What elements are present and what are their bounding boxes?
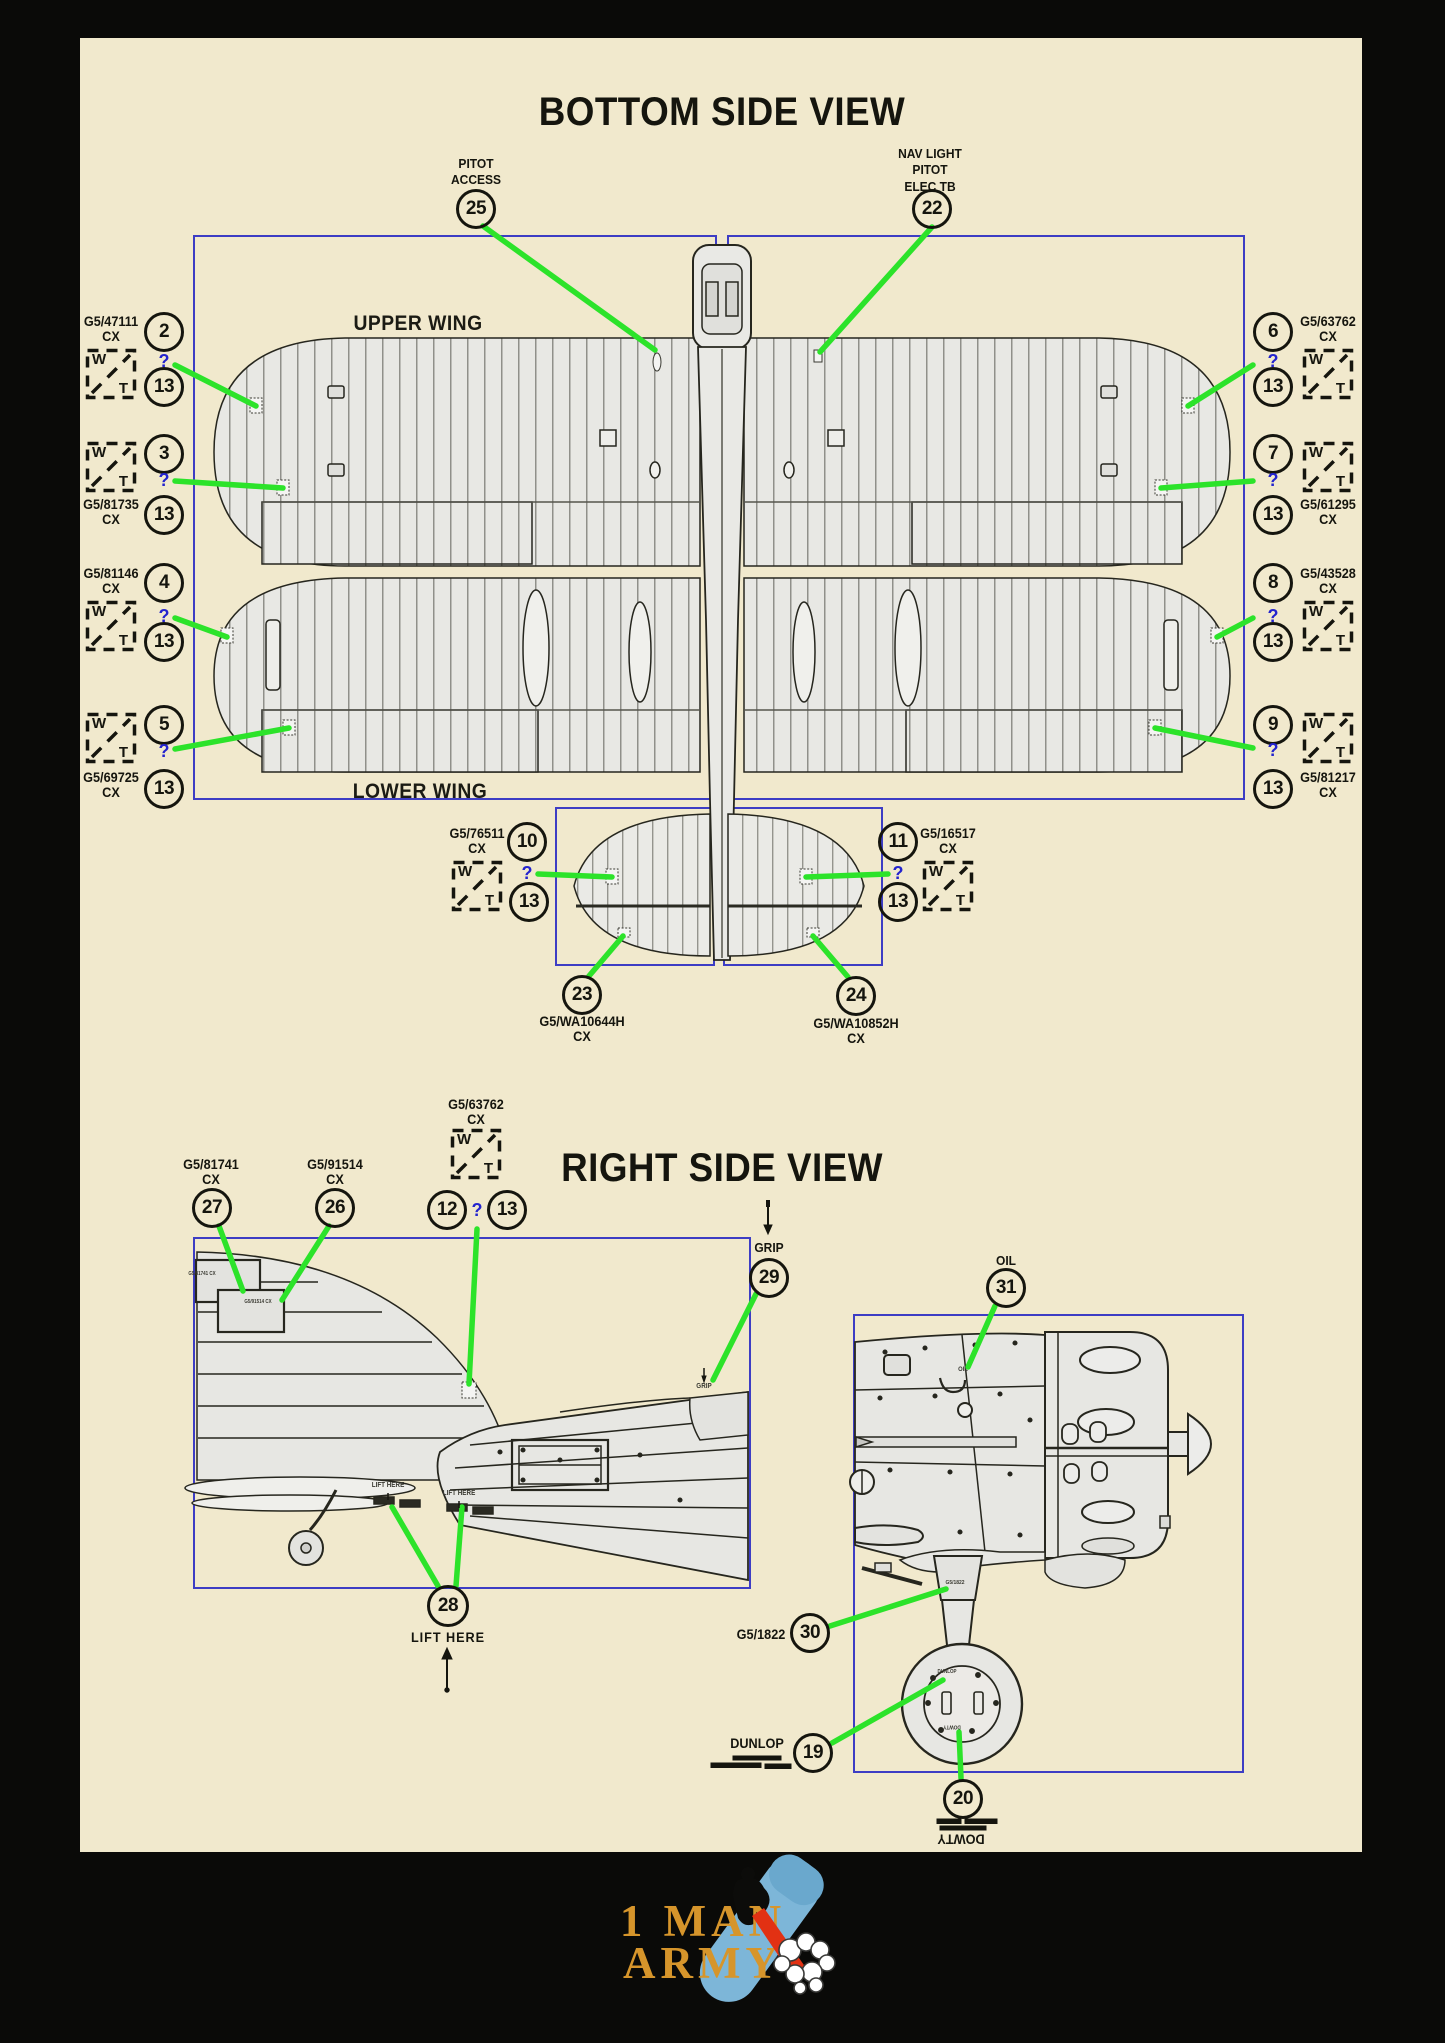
upper-wing-label: UPPER WING — [326, 312, 510, 336]
wet-transfer-icon-a: W T — [85, 348, 137, 400]
code-elv-right-number: G5/16517 — [920, 826, 976, 841]
code-23-cx: CX — [573, 1029, 591, 1044]
dowty-label: DOWTY — [928, 1831, 994, 1846]
instruction-sheet-page: BOTTOM SIDE VIEW RIGHT SIDE VIEW UPPER W… — [0, 0, 1445, 2043]
callout-20: 20 — [943, 1779, 983, 1819]
code-c-cx: CX — [102, 581, 120, 596]
code-h-number: G5/81217 — [1300, 770, 1356, 785]
code-23-number: G5/WA10644H — [539, 1014, 624, 1029]
query-h: ? — [1263, 740, 1283, 761]
query-f: ? — [1263, 470, 1283, 491]
wt-w: W — [92, 444, 106, 461]
code-d-cx: CX — [102, 785, 120, 800]
callout-24: 24 — [836, 976, 876, 1016]
wet-transfer-icon-g: W T — [1302, 600, 1354, 652]
oil-label: OIL — [972, 1253, 1039, 1269]
wt-w: W — [458, 863, 472, 880]
callout-13-walkway: 13 — [487, 1190, 527, 1230]
wt-w: W — [1309, 715, 1323, 732]
code-e-cx: CX — [1319, 329, 1337, 344]
callout-25: 25 — [456, 189, 496, 229]
bottom-view-title: BOTTOM SIDE VIEW — [446, 90, 998, 135]
code-24: G5/WA10852H CX — [786, 1016, 927, 1047]
in-drawing-hub-dowty: DOWTY — [929, 1723, 976, 1729]
lower-wing-label: LOWER WING — [328, 780, 512, 804]
wt-t: T — [956, 892, 965, 909]
callout-13-c: 13 — [144, 622, 184, 662]
code-elevator-right: G5/16517 CX — [896, 826, 999, 857]
code-walkway-number: G5/63762 — [448, 1097, 504, 1112]
query-walkway: ? — [467, 1200, 487, 1221]
code-walkway-cx: CX — [467, 1112, 485, 1127]
in-drawing-panel26-code: G5/91514 CX — [235, 1300, 282, 1306]
callout-13-elv-right: 13 — [878, 882, 918, 922]
code-f-number: G5/61295 — [1300, 497, 1356, 512]
code-elv-left-number: G5/76511 — [449, 826, 504, 841]
lift-here-label: LIFT HERE — [389, 1630, 507, 1645]
in-drawing-grip: GRIP — [684, 1383, 724, 1391]
callout-12: 12 — [427, 1190, 467, 1230]
code-strut: G5/1822 — [703, 1627, 786, 1642]
callout-13-a: 13 — [144, 367, 184, 407]
wt-w: W — [1309, 603, 1323, 620]
pitot-access-line1: PITOT — [418, 156, 533, 172]
query-d: ? — [154, 741, 174, 762]
code-h: G5/81217 CX — [1276, 770, 1379, 801]
wet-transfer-icon-f: W T — [1302, 441, 1354, 493]
nav-light-line1: NAV LIGHT — [872, 146, 987, 162]
code-26-cx: CX — [326, 1172, 344, 1187]
code-g-number: G5/43528 — [1300, 566, 1356, 581]
callout-19: 19 — [793, 1733, 833, 1773]
callout-3: 3 — [144, 434, 184, 474]
oil-text: OIL — [972, 1253, 1039, 1269]
pitot-access-line2: ACCESS — [418, 172, 533, 188]
callout-7: 7 — [1253, 434, 1293, 474]
grip-text: GRIP — [735, 1240, 802, 1256]
callout-31: 31 — [986, 1268, 1026, 1308]
callout-13-elv-left: 13 — [509, 882, 549, 922]
callout-28: 28 — [427, 1585, 469, 1627]
wt-t: T — [119, 744, 128, 761]
wt-w: W — [92, 351, 106, 368]
wet-transfer-icon-b: W T — [85, 441, 137, 493]
code-f-cx: CX — [1319, 512, 1337, 527]
code-24-cx: CX — [847, 1031, 865, 1046]
code-a-number: G5/47111 — [84, 314, 138, 329]
wt-w: W — [457, 1131, 471, 1148]
wet-transfer-icon-elv-left: W T — [451, 860, 503, 912]
wt-t: T — [1336, 380, 1345, 397]
code-26: G5/91514 CX — [283, 1157, 386, 1188]
code-24-number: G5/WA10852H — [813, 1016, 898, 1031]
code-h-cx: CX — [1319, 785, 1337, 800]
wet-transfer-icon-c: W T — [85, 600, 137, 652]
callout-29: 29 — [749, 1258, 789, 1298]
query-elv-left: ? — [517, 863, 537, 884]
grip-label: GRIP — [735, 1240, 802, 1256]
cream-sheet-background — [80, 38, 1362, 1852]
wet-transfer-icon-walkway: W T — [450, 1128, 502, 1180]
code-27-cx: CX — [202, 1172, 220, 1187]
code-elv-right-cx: CX — [939, 841, 957, 856]
nav-light-line2: PITOT — [872, 162, 987, 178]
wt-w: W — [92, 603, 106, 620]
callout-9: 9 — [1253, 705, 1293, 745]
in-drawing-oil: OIL — [949, 1366, 978, 1373]
dunlop-label: DUNLOP — [715, 1736, 800, 1751]
wt-t: T — [1336, 473, 1345, 490]
code-walkway: G5/63762 CX — [424, 1097, 527, 1128]
code-e: G5/63762 CX — [1276, 314, 1379, 345]
right-view-title: RIGHT SIDE VIEW — [492, 1146, 952, 1191]
code-f: G5/61295 CX — [1276, 497, 1379, 528]
callout-22: 22 — [912, 189, 952, 229]
pitot-access-label: PITOT ACCESS — [418, 156, 533, 189]
callout-13-e: 13 — [1253, 367, 1293, 407]
wet-transfer-icon-h: W T — [1302, 712, 1354, 764]
wt-t: T — [485, 892, 494, 909]
callout-23: 23 — [562, 975, 602, 1015]
code-g-cx: CX — [1319, 581, 1337, 596]
in-drawing-hub-dunlop: DUNLOP — [925, 1670, 970, 1676]
callout-13-b: 13 — [144, 495, 184, 535]
in-drawing-strut-code: G5/1822 — [928, 1580, 982, 1586]
callout-10: 10 — [507, 822, 547, 862]
callout-4: 4 — [144, 563, 184, 603]
code-27: G5/81741 CX — [159, 1157, 262, 1188]
wt-w: W — [929, 863, 943, 880]
wt-t: T — [119, 473, 128, 490]
wt-t: T — [119, 380, 128, 397]
callout-13-g: 13 — [1253, 622, 1293, 662]
wet-transfer-icon-elv-right: W T — [922, 860, 974, 912]
code-27-number: G5/81741 — [183, 1157, 239, 1172]
code-23: G5/WA10644H CX — [512, 1014, 653, 1045]
nav-light-label: NAV LIGHT PITOT ELEC TB — [872, 146, 987, 195]
wet-transfer-icon-d: W T — [85, 712, 137, 764]
in-drawing-lift-here-2: LIFT HERE — [432, 1490, 486, 1498]
callout-27: 27 — [192, 1188, 232, 1228]
callout-2: 2 — [144, 312, 184, 352]
wet-transfer-icon-e: W T — [1302, 348, 1354, 400]
callout-26: 26 — [315, 1188, 355, 1228]
code-elv-left-cx: CX — [468, 841, 486, 856]
callout-30: 30 — [790, 1613, 830, 1653]
wt-w: W — [1309, 444, 1323, 461]
code-a-cx: CX — [102, 329, 120, 344]
callout-13-d: 13 — [144, 769, 184, 809]
code-d-number: G5/69725 — [83, 770, 139, 785]
code-26-number: G5/91514 — [307, 1157, 363, 1172]
code-b-number: G5/81735 — [83, 497, 139, 512]
query-b: ? — [154, 470, 174, 491]
in-drawing-lift-here-1: LIFT HERE — [361, 1482, 415, 1490]
wt-t: T — [1336, 744, 1345, 761]
logo-line-2: ARMY — [563, 1941, 843, 1986]
callout-5: 5 — [144, 705, 184, 745]
code-e-number: G5/63762 — [1300, 314, 1356, 329]
code-b-cx: CX — [102, 512, 120, 527]
wt-w: W — [92, 715, 106, 732]
in-drawing-panel27-code: G5/81741 CX — [179, 1272, 226, 1278]
code-c-number: G5/81146 — [83, 566, 138, 581]
query-elv-right: ? — [888, 863, 908, 884]
wt-w: W — [1309, 351, 1323, 368]
wt-t: T — [119, 632, 128, 649]
wt-t: T — [484, 1160, 493, 1177]
code-g: G5/43528 CX — [1276, 566, 1379, 597]
wt-t: T — [1336, 632, 1345, 649]
